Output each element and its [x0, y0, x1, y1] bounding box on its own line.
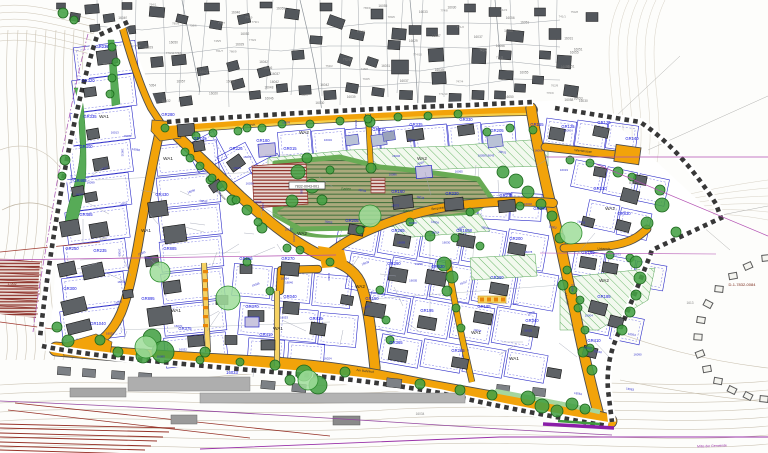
svg-text:GR165: GR165 — [530, 122, 544, 127]
svg-text:GR320: GR320 — [81, 78, 95, 83]
svg-text:16086: 16086 — [389, 173, 397, 177]
svg-text:GR185: GR185 — [597, 294, 611, 299]
svg-text:773/7: 773/7 — [218, 21, 226, 25]
svg-text:16030: 16030 — [579, 99, 588, 103]
svg-text:16031: 16031 — [381, 64, 390, 68]
svg-text:GR165: GR165 — [581, 250, 595, 255]
svg-text:GR195: GR195 — [420, 308, 434, 313]
svg-text:775/5: 775/5 — [174, 51, 182, 55]
svg-text:GR1040: GR1040 — [90, 321, 106, 326]
svg-text:16052: 16052 — [226, 80, 235, 84]
svg-text:772/10: 772/10 — [343, 57, 352, 61]
svg-text:16052: 16052 — [240, 32, 249, 36]
svg-text:780/9: 780/9 — [172, 21, 180, 25]
svg-text:758/6: 758/6 — [189, 24, 197, 28]
svg-text:16029: 16029 — [409, 39, 418, 43]
svg-text:16022: 16022 — [200, 70, 209, 74]
svg-text:GR335: GR335 — [409, 122, 423, 127]
svg-text:753/2: 753/2 — [326, 64, 334, 68]
svg-text:762/9: 762/9 — [551, 83, 559, 87]
svg-text:16004: 16004 — [324, 138, 332, 142]
svg-text:WA2: WA2 — [417, 156, 427, 161]
svg-text:741/1: 741/1 — [559, 14, 567, 18]
svg-text:GR290: GR290 — [387, 261, 401, 266]
svg-text:GR895: GR895 — [141, 296, 155, 301]
svg-text:16043: 16043 — [486, 153, 494, 157]
svg-text:16050: 16050 — [169, 41, 178, 45]
svg-text:WA1: WA1 — [273, 326, 283, 331]
svg-text:16024: 16024 — [431, 230, 439, 234]
svg-text:773/10: 773/10 — [102, 62, 111, 66]
svg-text:16046: 16046 — [263, 66, 272, 70]
svg-text:760/5: 760/5 — [363, 77, 371, 81]
svg-text:774/9: 774/9 — [245, 15, 253, 19]
svg-text:GR300: GR300 — [63, 286, 77, 291]
svg-text:16089: 16089 — [157, 355, 165, 359]
svg-text:16039: 16039 — [435, 68, 444, 72]
svg-text:16046: 16046 — [231, 11, 240, 15]
svg-text:GR410: GR410 — [259, 332, 273, 337]
svg-text:16002: 16002 — [524, 202, 532, 206]
svg-text:16051: 16051 — [566, 64, 575, 68]
svg-text:GR465: GR465 — [73, 178, 87, 183]
svg-text:16046: 16046 — [392, 154, 400, 158]
svg-text:16064: 16064 — [281, 276, 289, 280]
svg-text:16038: 16038 — [504, 29, 513, 33]
svg-text:GR1608: GR1608 — [456, 228, 472, 233]
svg-text:GR335: GR335 — [83, 114, 97, 119]
svg-text:GR365: GR365 — [389, 340, 403, 345]
svg-text:GR330: GR330 — [459, 117, 473, 122]
svg-text:774/8: 774/8 — [440, 8, 448, 12]
svg-text:WA1: WA1 — [163, 156, 173, 161]
svg-text:16042: 16042 — [270, 80, 279, 84]
svg-text:16042: 16042 — [320, 83, 329, 87]
svg-text:WA2: WA2 — [355, 284, 365, 289]
svg-text:741/4: 741/4 — [479, 48, 487, 52]
svg-text:748/8: 748/8 — [361, 67, 369, 71]
svg-text:16062: 16062 — [511, 302, 519, 306]
svg-text:GR255: GR255 — [239, 256, 253, 261]
svg-text:16040: 16040 — [285, 280, 293, 284]
svg-text:WA1: WA1 — [509, 356, 519, 361]
svg-text:16051: 16051 — [520, 21, 529, 25]
svg-text:16056: 16056 — [506, 16, 515, 20]
svg-text:771/10: 771/10 — [439, 92, 448, 96]
svg-text:16092: 16092 — [233, 166, 241, 170]
svg-text:16025: 16025 — [524, 328, 532, 332]
svg-text:16013: 16013 — [111, 130, 119, 134]
svg-text:GR285: GR285 — [451, 348, 465, 353]
svg-text:16058: 16058 — [564, 98, 573, 102]
svg-text:16099: 16099 — [87, 180, 95, 184]
svg-text:GR200: GR200 — [509, 236, 523, 241]
svg-text:16078: 16078 — [524, 250, 532, 254]
svg-text:742/3: 742/3 — [500, 8, 508, 12]
svg-text:754/8: 754/8 — [571, 10, 579, 14]
svg-text:16055: 16055 — [378, 4, 387, 8]
svg-text:16032: 16032 — [121, 148, 125, 156]
svg-text:WA2: WA2 — [297, 231, 307, 236]
svg-text:16004: 16004 — [585, 313, 593, 317]
svg-text:Urbanstr.: Urbanstr. — [598, 247, 611, 251]
svg-text:761/7: 761/7 — [216, 49, 224, 53]
svg-text:765/5: 765/5 — [300, 93, 308, 97]
svg-text:GR295: GR295 — [533, 206, 547, 211]
svg-text:16037: 16037 — [474, 35, 483, 39]
svg-text:16069: 16069 — [397, 240, 405, 244]
svg-text:16020: 16020 — [209, 92, 218, 96]
svg-text:16046: 16046 — [265, 96, 274, 100]
svg-text:16051: 16051 — [106, 332, 114, 336]
svg-text:16019: 16019 — [560, 168, 568, 172]
svg-text:GR040: GR040 — [283, 294, 297, 299]
svg-text:GR205: GR205 — [345, 218, 359, 223]
svg-text:16009: 16009 — [282, 120, 290, 124]
svg-text:GR125: GR125 — [597, 120, 611, 125]
svg-text:16096: 16096 — [415, 262, 423, 266]
svg-text:16058: 16058 — [478, 153, 486, 157]
svg-text:16030: 16030 — [442, 241, 450, 245]
svg-text:16027: 16027 — [285, 228, 293, 232]
svg-text:780/6: 780/6 — [388, 15, 396, 19]
svg-text:GR375: GR375 — [178, 326, 192, 331]
svg-text:GR180: GR180 — [256, 138, 270, 143]
svg-text:16059: 16059 — [276, 7, 285, 11]
svg-text:GR225: GR225 — [229, 146, 243, 151]
svg-text:771/2: 771/2 — [457, 25, 465, 29]
svg-text:16037: 16037 — [271, 72, 280, 76]
svg-text:16062: 16062 — [124, 134, 132, 138]
svg-text:16057: 16057 — [75, 192, 83, 196]
svg-text:WA1: WA1 — [471, 330, 481, 335]
svg-text:GR270: GR270 — [281, 256, 295, 261]
svg-text:GR205: GR205 — [490, 128, 504, 133]
svg-text:GR885: GR885 — [163, 246, 177, 251]
svg-text:16058: 16058 — [409, 221, 417, 225]
svg-text:747/4: 747/4 — [456, 80, 464, 84]
svg-text:16056: 16056 — [496, 44, 505, 48]
svg-text:1-002: 1-002 — [7, 282, 16, 286]
svg-text:16031: 16031 — [117, 280, 125, 284]
svg-text:GR520: GR520 — [431, 264, 445, 269]
svg-text:779/4: 779/4 — [249, 38, 257, 42]
svg-text:16030: 16030 — [447, 6, 456, 10]
svg-text:16032: 16032 — [162, 99, 171, 103]
svg-text:GR330: GR330 — [593, 186, 607, 191]
svg-text:16090: 16090 — [634, 352, 642, 356]
svg-text:16033: 16033 — [226, 370, 238, 375]
svg-text:16072: 16072 — [391, 204, 399, 208]
svg-text:WA1: WA1 — [141, 228, 151, 233]
svg-text:GR280: GR280 — [161, 112, 175, 117]
svg-text:16009: 16009 — [117, 248, 121, 256]
svg-text:16030: 16030 — [315, 101, 324, 105]
svg-text:GR370: GR370 — [245, 304, 259, 309]
svg-text:16050: 16050 — [505, 95, 514, 99]
svg-text:16037: 16037 — [400, 79, 409, 83]
svg-text:775/11: 775/11 — [357, 30, 366, 34]
svg-text:16048: 16048 — [264, 86, 273, 90]
svg-text:774/10: 774/10 — [413, 52, 422, 56]
svg-text:D-1-7832-0084: D-1-7832-0084 — [729, 282, 757, 287]
svg-text:WA1: WA1 — [171, 308, 181, 313]
svg-text:16032: 16032 — [179, 348, 187, 352]
svg-text:16099: 16099 — [570, 284, 574, 292]
svg-text:745/5: 745/5 — [214, 39, 222, 43]
svg-text:GR145: GR145 — [193, 136, 207, 141]
svg-text:16055: 16055 — [570, 50, 579, 54]
svg-text:16090: 16090 — [563, 129, 571, 133]
svg-text:16076: 16076 — [292, 234, 296, 242]
svg-text:GR340: GR340 — [525, 318, 539, 323]
svg-text:16099: 16099 — [327, 273, 331, 281]
svg-text:GR250: GR250 — [65, 246, 79, 251]
svg-text:771/2: 771/2 — [496, 55, 504, 59]
svg-text:16060: 16060 — [534, 149, 542, 153]
svg-text:16033: 16033 — [419, 10, 428, 14]
svg-text:1613: 1613 — [686, 301, 693, 305]
svg-text:GR140: GR140 — [625, 136, 639, 141]
svg-text:GR430: GR430 — [155, 192, 169, 197]
svg-text:16039: 16039 — [347, 95, 356, 99]
svg-text:16029: 16029 — [235, 43, 244, 47]
svg-text:16001: 16001 — [261, 203, 265, 211]
svg-text:765/9: 765/9 — [363, 6, 371, 10]
svg-text:GR035: GR035 — [95, 44, 109, 49]
svg-text:770/9: 770/9 — [546, 91, 554, 95]
svg-text:775/7: 775/7 — [133, 44, 141, 48]
svg-text:16009: 16009 — [243, 155, 251, 159]
svg-text:779/1: 779/1 — [252, 20, 260, 24]
svg-text:GR485: GR485 — [79, 212, 93, 217]
svg-text:GR419: GR419 — [309, 316, 323, 321]
svg-text:WA2: WA2 — [299, 130, 309, 135]
svg-text:16036: 16036 — [246, 181, 254, 185]
svg-text:WA2: WA2 — [599, 278, 609, 283]
svg-text:7832-0043-001: 7832-0043-001 — [295, 185, 319, 189]
svg-text:GR310: GR310 — [372, 127, 386, 132]
svg-text:GR260: GR260 — [490, 275, 504, 280]
svg-text:764/1: 764/1 — [149, 2, 157, 6]
svg-text:GR275: GR275 — [499, 193, 513, 198]
svg-text:GR220: GR220 — [445, 191, 459, 196]
svg-text:WA1: WA1 — [99, 114, 109, 119]
svg-text:16034: 16034 — [416, 412, 425, 416]
svg-text:16009: 16009 — [253, 200, 261, 204]
svg-text:16031: 16031 — [564, 36, 573, 40]
svg-text:16084: 16084 — [354, 120, 358, 128]
svg-text:16057: 16057 — [176, 79, 185, 83]
svg-text:GR235: GR235 — [93, 248, 107, 253]
svg-text:GR400: GR400 — [79, 144, 93, 149]
svg-text:16042: 16042 — [259, 60, 268, 64]
svg-text:16055: 16055 — [520, 71, 529, 75]
svg-text:WA2: WA2 — [605, 206, 615, 211]
svg-text:1599: 1599 — [99, 237, 106, 241]
svg-text:766/9: 766/9 — [229, 49, 237, 53]
svg-text:GR285: GR285 — [391, 228, 405, 233]
svg-text:GR160: GR160 — [391, 189, 405, 194]
svg-text:16037: 16037 — [432, 34, 441, 38]
svg-text:Garten: Garten — [341, 187, 351, 191]
svg-text:Garten: Garten — [403, 209, 413, 213]
svg-text:GR015: GR015 — [283, 146, 297, 151]
svg-text:GR185: GR185 — [477, 304, 491, 309]
svg-text:16065: 16065 — [455, 170, 463, 174]
svg-text:16073: 16073 — [613, 252, 621, 256]
svg-text:B43: B43 — [629, 181, 635, 185]
svg-text:16024: 16024 — [324, 356, 332, 360]
svg-text:16029: 16029 — [144, 46, 153, 50]
svg-text:GR125: GR125 — [561, 124, 575, 129]
svg-text:GR830: GR830 — [617, 211, 631, 216]
svg-text:GR150: GR150 — [365, 296, 379, 301]
svg-text:GR410: GR410 — [587, 338, 601, 343]
svg-text:16005: 16005 — [409, 279, 417, 283]
svg-text:16053: 16053 — [280, 315, 288, 319]
